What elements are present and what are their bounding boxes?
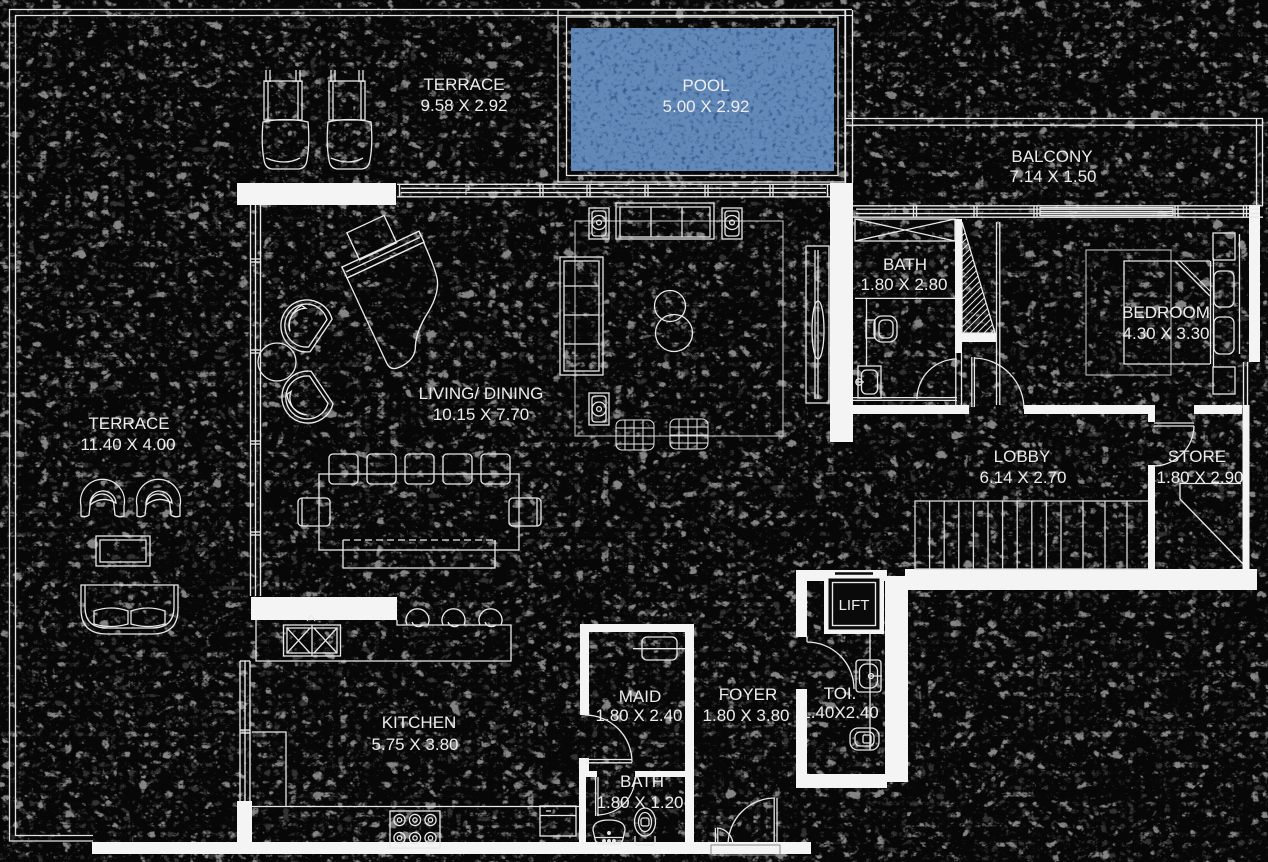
svg-text:1.80 X 2.40: 1.80 X 2.40 <box>596 706 683 725</box>
svg-text:LIFT: LIFT <box>839 597 870 614</box>
svg-text:11.40 X 4.00: 11.40 X 4.00 <box>80 435 175 454</box>
svg-text:9.58 X 2.92: 9.58 X 2.92 <box>421 96 508 115</box>
svg-text:POOL: POOL <box>682 76 729 95</box>
svg-text:1.80 X 1.20: 1.80 X 1.20 <box>597 793 684 812</box>
svg-text:4.30 X 3.30: 4.30 X 3.30 <box>1123 324 1210 343</box>
svg-text:1.40X2.40: 1.40X2.40 <box>801 703 879 722</box>
svg-text:5.00 X 2.92: 5.00 X 2.92 <box>663 97 750 116</box>
svg-text:10.15 X 7.70: 10.15 X 7.70 <box>433 405 529 424</box>
svg-text:KITCHEN: KITCHEN <box>382 713 457 732</box>
svg-text:BATH: BATH <box>883 255 927 274</box>
svg-text:BALCONY: BALCONY <box>1011 147 1092 166</box>
svg-text:LOBBY: LOBBY <box>994 447 1051 466</box>
svg-text:TOI.: TOI. <box>824 684 857 703</box>
svg-text:LIVING/ DINING: LIVING/ DINING <box>419 384 544 403</box>
svg-text:BATH: BATH <box>620 772 664 791</box>
svg-text:5.75 X 3.80: 5.75 X 3.80 <box>372 735 459 754</box>
svg-text:1.80 X 2.90: 1.80 X 2.90 <box>1157 468 1244 487</box>
svg-text:1.80 X 3.80: 1.80 X 3.80 <box>703 706 790 725</box>
svg-text:MAID: MAID <box>619 687 662 706</box>
svg-text:BEDROOM: BEDROOM <box>1122 303 1210 322</box>
svg-text:FOYER: FOYER <box>719 685 778 704</box>
svg-text:7.14 X 1.50: 7.14 X 1.50 <box>1010 167 1097 186</box>
svg-text:STORE: STORE <box>1168 447 1226 466</box>
svg-text:1.80 X 2.80: 1.80 X 2.80 <box>861 275 948 294</box>
svg-text:TERRACE: TERRACE <box>88 414 169 433</box>
svg-text:6.14 X 2.70: 6.14 X 2.70 <box>980 468 1067 487</box>
svg-text:TERRACE: TERRACE <box>423 75 504 94</box>
